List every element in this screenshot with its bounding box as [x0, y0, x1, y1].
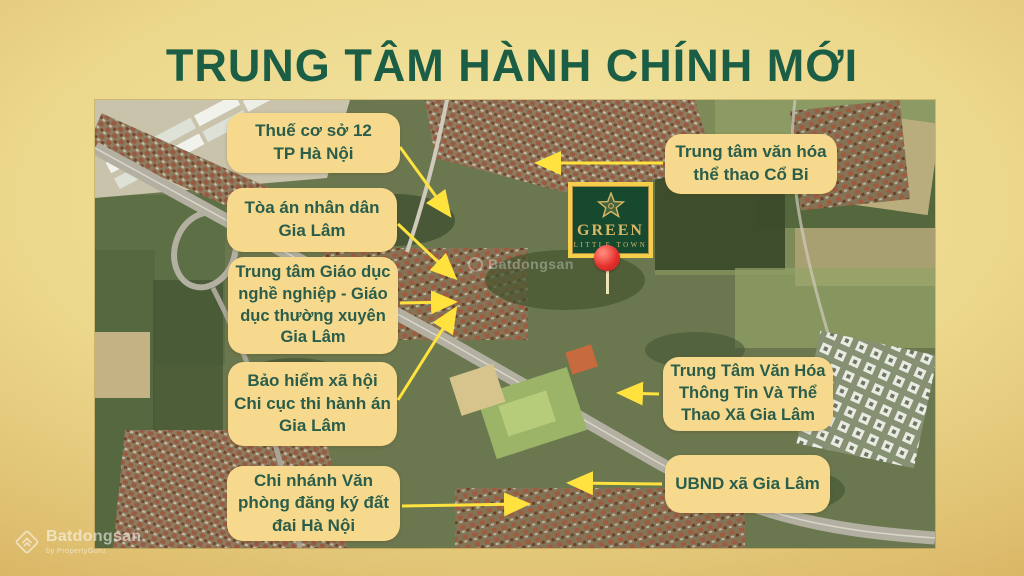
callout-line: Thuế cơ sở 12 [255, 120, 372, 143]
callout-line: thể thao Cổ Bi [693, 164, 808, 187]
callout-line: TP Hà Nội [274, 143, 354, 166]
callout-line: Gia Lâm [279, 415, 346, 438]
callout-ubnd: UBND xã Gia Lâm [665, 455, 830, 513]
callout-line: dục thường xuyên [240, 306, 386, 328]
callout-line: Thông Tin Và Thể [679, 383, 817, 405]
callout-line: Chi nhánh Văn [254, 470, 373, 493]
page-background: TRUNG TÂM HÀNH CHÍNH MỚI [0, 0, 1024, 576]
callout-trung-tam-giao-duc: Trung tâm Giáo dục nghề nghiệp - Giáo dụ… [228, 257, 398, 354]
callout-line: Trung Tâm Văn Hóa [671, 361, 826, 383]
star-icon [596, 192, 626, 220]
callout-line: Trung tâm Giáo dục [236, 262, 391, 284]
brand-watermark: Batdongsan by PropertyGuru [14, 529, 141, 555]
map-watermark-icon [468, 257, 483, 272]
map-watermark: Batdongsan [468, 256, 574, 272]
callout-line: Trung tâm văn hóa [675, 141, 826, 164]
callout-toa-an: Tòa án nhân dân Gia Lâm [227, 188, 397, 252]
page-title: TRUNG TÂM HÀNH CHÍNH MỚI [0, 40, 1024, 92]
logo-name: GREEN [577, 222, 644, 240]
callout-chi-nhanh: Chi nhánh Văn phòng đăng ký đất đai Hà N… [227, 466, 400, 541]
callout-line: phòng đăng ký đất [238, 492, 389, 515]
callout-van-hoa-thong-tin: Trung Tâm Văn Hóa Thông Tin Và Thể Thao … [663, 357, 833, 431]
callout-line: Bảo hiểm xã hội [247, 370, 377, 393]
location-pin-icon [594, 245, 620, 271]
brand-byline: by PropertyGuru [46, 547, 141, 555]
brand-house-icon [14, 529, 40, 555]
callout-bao-hiem: Bảo hiểm xã hội Chi cục thi hành án Gia … [228, 362, 397, 446]
callout-line: Chi cục thi hành án [234, 393, 391, 416]
callout-line: đai Hà Nội [272, 515, 355, 538]
callout-thue-co-so: Thuế cơ sở 12 TP Hà Nội [227, 113, 400, 173]
callout-line: Gia Lâm [280, 327, 345, 349]
brand-name: Batdongsan [46, 529, 141, 545]
callout-line: UBND xã Gia Lâm [675, 473, 820, 496]
callout-line: Tòa án nhân dân [244, 197, 379, 220]
callout-line: Thao Xã Gia Lâm [681, 405, 815, 427]
callout-line: Gia Lâm [278, 220, 345, 243]
callout-line: nghề nghiệp - Giáo [238, 284, 387, 306]
callout-co-bi: Trung tâm văn hóa thể thao Cổ Bi [665, 134, 837, 194]
map-watermark-text: Batdongsan [488, 256, 574, 272]
